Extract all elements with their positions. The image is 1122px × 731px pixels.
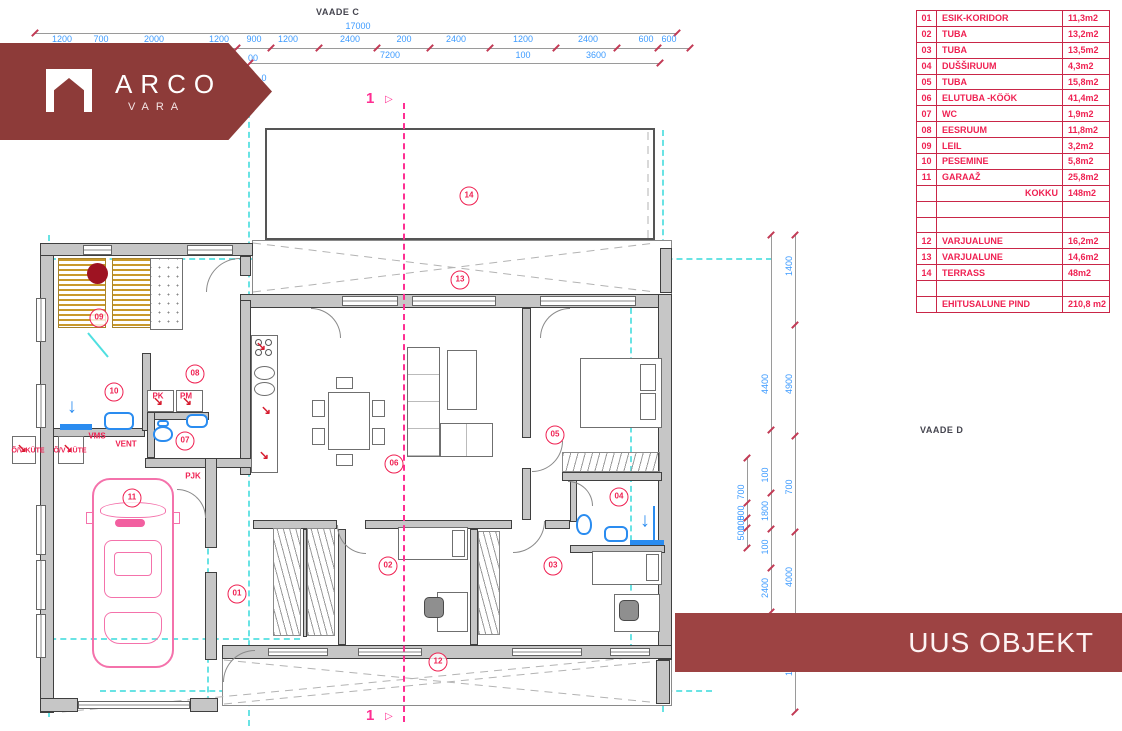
room-number-cell: 09: [917, 138, 937, 154]
room-area-cell: 11,3m2: [1063, 11, 1110, 27]
dim-label: 2400: [760, 578, 770, 598]
table-row: 02TUBA13,2m2: [917, 26, 1110, 42]
shower-bench: [60, 424, 92, 430]
window: [36, 560, 46, 610]
room-number-cell: 04: [917, 58, 937, 74]
room-name-cell: ESIK-KORIDOR: [937, 11, 1063, 27]
room-name-cell: [937, 201, 1063, 217]
washbasin: [186, 414, 208, 428]
table-row: [917, 217, 1110, 233]
dining-chair: [336, 377, 353, 389]
room-name-cell: TUBA: [937, 74, 1063, 90]
table-row: 11GARAAŽ25,8m2: [917, 169, 1110, 185]
room-area-cell: [1063, 217, 1110, 233]
window: [78, 701, 190, 709]
room-name-cell: LEIL: [937, 138, 1063, 154]
room-area-cell: 25,8m2: [1063, 169, 1110, 185]
desk-chair: [619, 600, 639, 621]
room-badge-02: 02: [379, 557, 398, 576]
room-badge-13: 13: [451, 271, 470, 290]
pillow: [640, 393, 656, 420]
room-area-cell: 48m2: [1063, 265, 1110, 281]
wall: [338, 529, 346, 645]
car-trunk: [104, 612, 162, 644]
pillow: [640, 364, 656, 391]
sauna-glass-door: [88, 333, 108, 357]
wall: [522, 308, 531, 438]
dim-label: 4900: [784, 374, 794, 394]
room-area-cell: 148m2: [1063, 185, 1110, 201]
table-row: EHITUSALUNE PIND210,8 m2: [917, 297, 1110, 313]
dim-label: 100: [515, 50, 530, 60]
wardrobe: [478, 531, 500, 635]
kitchen-sink: [254, 366, 275, 380]
dining-chair: [312, 428, 325, 445]
dim-label: 2400: [340, 34, 360, 44]
section-number-bottom: 1: [366, 707, 374, 724]
room-area-cell: 11,8m2: [1063, 122, 1110, 138]
room-name-cell: [937, 217, 1063, 233]
room-number-cell: 01: [917, 11, 937, 27]
shower-arrow-icon: ↓: [67, 396, 77, 419]
dim-label: 3600: [586, 50, 606, 60]
window: [610, 648, 650, 656]
window: [187, 245, 233, 255]
room-name-cell: WC: [937, 106, 1063, 122]
pillow: [452, 530, 465, 557]
wall: [240, 256, 251, 276]
room-badge-05: 05: [546, 426, 565, 445]
dim-label: 4000: [784, 567, 794, 587]
car-window: [114, 552, 152, 576]
room-area-cell: 210,8 m2: [1063, 297, 1110, 313]
window: [36, 384, 46, 428]
wardrobe: [562, 452, 660, 472]
logo-subtitle: VARA: [128, 101, 185, 113]
room-number-cell: 06: [917, 90, 937, 106]
plan-annotation: VMS: [88, 432, 105, 441]
room-number-cell: 14: [917, 265, 937, 281]
shower-arrow-icon: ↓: [640, 510, 650, 533]
washbasin: [604, 526, 628, 542]
dim-label: 7200: [380, 50, 400, 60]
room-name-cell: DUŠŠIRUUM: [937, 58, 1063, 74]
room-name-cell: TUBA: [937, 42, 1063, 58]
car-sunroof: [115, 519, 145, 527]
shower-floor-strip: [630, 540, 664, 545]
table-row: [917, 201, 1110, 217]
wall: [40, 698, 78, 712]
dim-label: 700: [736, 484, 746, 499]
room-area-cell: 5,8m2: [1063, 154, 1110, 170]
vent-arrow-icon: ↘: [261, 403, 271, 417]
window: [540, 296, 636, 306]
vent-arrow-icon: ↘: [259, 448, 269, 462]
room-name-cell: KOKKU: [937, 185, 1063, 201]
pillar: [660, 248, 672, 293]
window: [358, 648, 422, 656]
table-row: 04DUŠŠIRUUM4,3m2: [917, 58, 1110, 74]
plan-annotation: Õ/V KÜTE: [11, 448, 44, 455]
vent-arrow-icon: ↘: [256, 339, 266, 353]
kitchen-sink: [254, 382, 275, 396]
dim-label: 1200: [52, 34, 72, 44]
shower-wall-line: [653, 506, 655, 542]
room-badge-04: 04: [610, 488, 629, 507]
dim-label: 100: [760, 467, 770, 482]
window: [512, 648, 582, 656]
room-badge-06: 06: [385, 455, 404, 474]
room-badge-09: 09: [90, 309, 109, 328]
arco-vara-logo: ARCO VARA: [0, 43, 272, 140]
stove-burner-icon: [265, 339, 272, 346]
room-area-cell: 16,2m2: [1063, 233, 1110, 249]
room-number-cell: [917, 217, 937, 233]
room-badge-14: 14: [460, 187, 479, 206]
dim-label: 1200: [278, 34, 298, 44]
car-mirror: [86, 512, 94, 524]
dim-label: 4400: [760, 374, 770, 394]
varjualune-12-cross: [224, 660, 670, 704]
dim-label: 700: [784, 479, 794, 494]
dim-label: 1400: [784, 256, 794, 276]
window: [342, 296, 398, 306]
room-name-cell: EESRUUM: [937, 122, 1063, 138]
room-area-cell: [1063, 201, 1110, 217]
room-area-cell: 1,9m2: [1063, 106, 1110, 122]
room-number-cell: 11: [917, 169, 937, 185]
table-row: 07WC1,9m2: [917, 106, 1110, 122]
room-area-cell: 15,8m2: [1063, 74, 1110, 90]
room-badge-07: 07: [176, 432, 195, 451]
dim-label: 1200: [209, 34, 229, 44]
stove-burner-icon: [265, 349, 272, 356]
plan-annotation: VENT: [115, 440, 136, 449]
dimension-line: [771, 235, 772, 612]
room-badge-10: 10: [105, 383, 124, 402]
section-number-top: 1: [366, 90, 374, 107]
room-name-cell: TERRASS: [937, 265, 1063, 281]
room-badge-01: 01: [228, 585, 247, 604]
table-row: 12VARJUALUNE16,2m2: [917, 233, 1110, 249]
room-number-cell: [917, 281, 937, 297]
pillar: [656, 660, 670, 704]
dim-label: 900: [246, 34, 261, 44]
desk-chair: [424, 597, 444, 618]
dim-label: 1200: [513, 34, 533, 44]
house-icon-cutout: [54, 78, 84, 112]
corridor-closet: [307, 528, 335, 636]
dim-label: 600: [661, 34, 676, 44]
room-name-cell: PESEMINE: [937, 154, 1063, 170]
window: [36, 614, 46, 658]
room-name-cell: VARJUALUNE: [937, 249, 1063, 265]
room-number-cell: [917, 185, 937, 201]
room-name-cell: TUBA: [937, 26, 1063, 42]
blueprint-page: { "colors": { "logo_maroon": "#8d3b39", …: [0, 0, 1122, 731]
new-object-banner: UUS OBJEKT: [675, 613, 1122, 672]
plan-annotation: PJK: [185, 472, 201, 481]
toilet-tank: [157, 420, 169, 427]
room-number-cell: [917, 201, 937, 217]
dim-label: 2400: [446, 34, 466, 44]
room-area-cell: 41,4m2: [1063, 90, 1110, 106]
view-label-d: VAADE D: [920, 425, 963, 435]
table-row: 01ESIK-KORIDOR11,3m2: [917, 11, 1110, 27]
room-area-table: 01ESIK-KORIDOR11,3m202TUBA13,2m203TUBA13…: [916, 10, 1110, 313]
dim-label: 1800: [760, 501, 770, 521]
room-number-cell: 10: [917, 154, 937, 170]
wall: [470, 529, 478, 645]
dim-label: 700: [93, 34, 108, 44]
room-name-cell: ELUTUBA -KÖÖK: [937, 90, 1063, 106]
table-row: 03TUBA13,5m2: [917, 42, 1110, 58]
wall: [205, 458, 217, 548]
logo-title: ARCO: [115, 69, 222, 100]
wall: [190, 698, 218, 712]
wall: [240, 300, 251, 475]
wall: [522, 468, 531, 520]
wall: [562, 472, 662, 481]
room-number-cell: 12: [917, 233, 937, 249]
plan-annotation: PK: [152, 392, 163, 401]
section-flag-icon: ▷: [385, 711, 393, 722]
sauna-heater-icon: [87, 263, 108, 284]
room-number-cell: 05: [917, 74, 937, 90]
room-name-cell: VARJUALUNE: [937, 233, 1063, 249]
room-name-cell: EHITUSALUNE PIND: [937, 297, 1063, 313]
table-row: 10PESEMINE5,8m2: [917, 154, 1110, 170]
room-number-cell: 07: [917, 106, 937, 122]
table-row: 14TERRASS48m2: [917, 265, 1110, 281]
hall-cabinet: [150, 258, 183, 330]
room-badge-08: 08: [186, 365, 205, 384]
window: [412, 296, 496, 306]
room-name-cell: [937, 281, 1063, 297]
window: [36, 505, 46, 555]
room-badge-12: 12: [429, 653, 448, 672]
table-row: KOKKU148m2: [917, 185, 1110, 201]
table-row: 13VARJUALUNE14,6m2: [917, 249, 1110, 265]
window: [83, 245, 112, 255]
room-area-cell: 13,2m2: [1063, 26, 1110, 42]
dim-label: 100: [760, 539, 770, 554]
table-row: 09LEIL3,2m2: [917, 138, 1110, 154]
room-number-cell: 02: [917, 26, 937, 42]
sideboard: [447, 350, 477, 410]
dining-chair: [372, 400, 385, 417]
sofa-long-section: [407, 347, 440, 457]
room-badge-03: 03: [544, 557, 563, 576]
dim-total: 17000: [345, 21, 370, 31]
section-cut-line: [403, 103, 405, 722]
room-badge-11: 11: [123, 489, 142, 508]
room-number-cell: [917, 297, 937, 313]
dining-chair: [372, 428, 385, 445]
pillow: [646, 554, 659, 581]
window: [268, 648, 328, 656]
room-number-cell: 03: [917, 42, 937, 58]
sofa-short-section: [440, 423, 493, 457]
dim-label: 600: [638, 34, 653, 44]
room-area-cell: 3,2m2: [1063, 138, 1110, 154]
toilet-icon: [576, 514, 592, 535]
room-area-cell: 14,6m2: [1063, 249, 1110, 265]
toilet-icon: [153, 426, 173, 442]
wall: [205, 572, 217, 660]
dining-chair: [312, 400, 325, 417]
table-row: 06ELUTUBA -KÖÖK41,4m2: [917, 90, 1110, 106]
corridor-closet: [273, 528, 301, 636]
room-area-cell: [1063, 281, 1110, 297]
view-label-c: VAADE C: [316, 7, 359, 17]
table-row: [917, 281, 1110, 297]
dim-label: 2400: [578, 34, 598, 44]
room-name-cell: GARAAŽ: [937, 169, 1063, 185]
dim-label: 200: [396, 34, 411, 44]
room-area-cell: 13,5m2: [1063, 42, 1110, 58]
room-number-cell: 08: [917, 122, 937, 138]
dining-table: [328, 392, 370, 450]
table-row: 08EESRUUM11,8m2: [917, 122, 1110, 138]
dining-chair: [336, 454, 353, 466]
window: [36, 298, 46, 342]
wall: [145, 458, 255, 468]
room-area-cell: 4,3m2: [1063, 58, 1110, 74]
wall: [545, 520, 570, 529]
house-icon: [46, 69, 92, 112]
room-number-cell: 13: [917, 249, 937, 265]
table-row: 05TUBA15,8m2: [917, 74, 1110, 90]
washbasin: [104, 412, 134, 430]
dim-label: 2000: [144, 34, 164, 44]
plan-annotation: PM: [180, 392, 192, 401]
dimension-line: [250, 63, 660, 64]
section-flag-icon: ▷: [385, 94, 393, 105]
plan-annotation: Õ/V KÜTE: [53, 448, 86, 455]
